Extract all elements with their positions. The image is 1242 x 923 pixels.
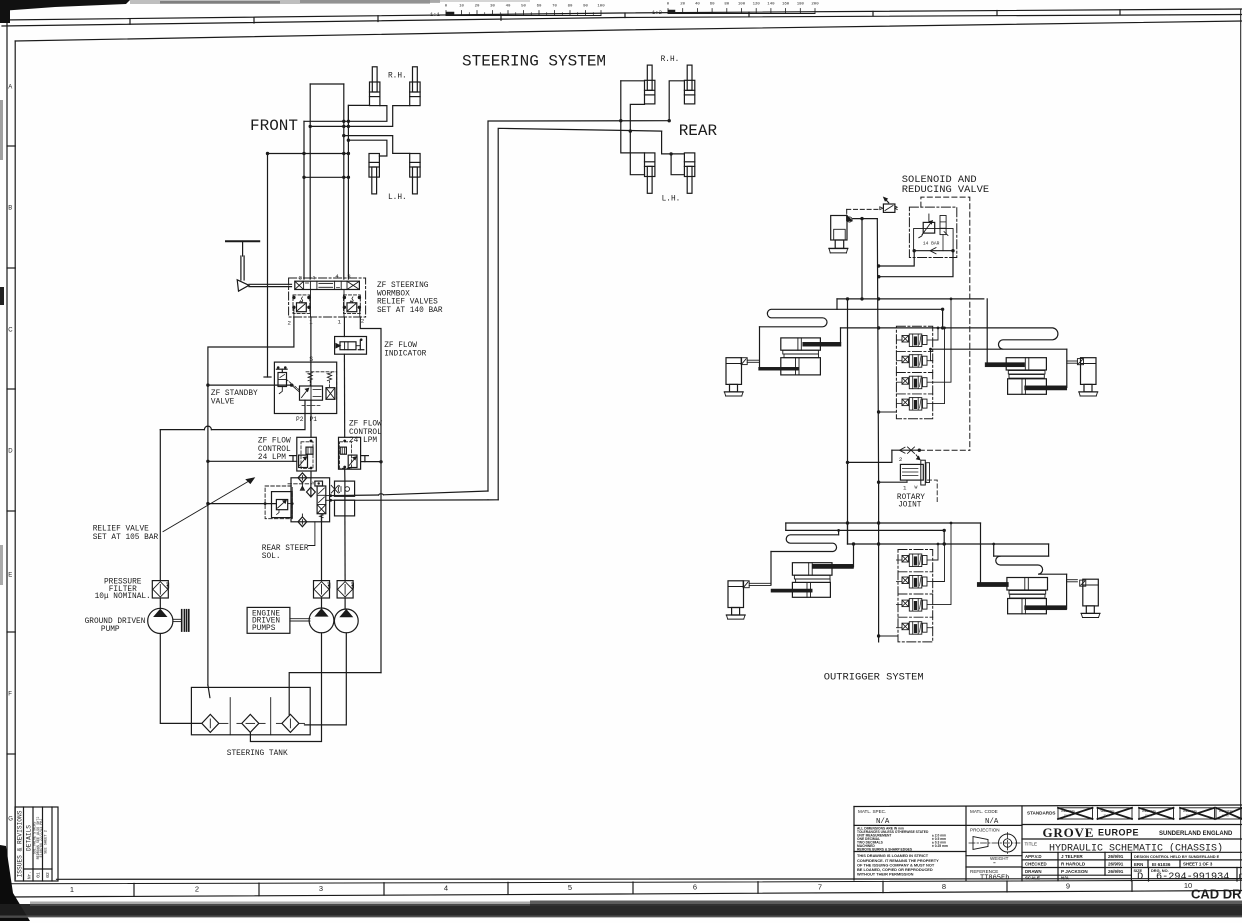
- svg-text:E: E: [8, 573, 12, 579]
- svg-text:2: 2: [361, 318, 365, 325]
- svg-text:01: 01: [36, 872, 42, 878]
- svg-text:24 LPM: 24 LPM: [349, 437, 377, 445]
- svg-text:10: 10: [459, 5, 464, 9]
- svg-text:EUROPE: EUROPE: [1098, 828, 1139, 838]
- svg-text:3: 3: [347, 273, 351, 280]
- svg-text:REMOVE BURRS & SHARP EDGES: REMOVE BURRS & SHARP EDGES: [857, 848, 913, 852]
- svg-text:FRONT: FRONT: [250, 117, 298, 135]
- svg-text:4: 4: [335, 273, 339, 280]
- svg-text:SYM: SYM: [1064, 814, 1071, 818]
- svg-text:L.H.: L.H.: [388, 194, 407, 202]
- svg-text:ISSUES & REVISIONS: ISSUES & REVISIONS: [16, 810, 23, 877]
- svg-text:SET AT 140 BAR: SET AT 140 BAR: [377, 307, 443, 315]
- svg-text:8: 8: [942, 882, 946, 891]
- svg-text:26/9/91: 26/9/91: [1108, 869, 1124, 874]
- svg-text:APP.V.D: APP.V.D: [1025, 854, 1042, 859]
- svg-text:P1: P1: [310, 416, 318, 423]
- svg-text:REFERENCE: REFERENCE: [970, 869, 998, 874]
- svg-text:200: 200: [811, 3, 819, 7]
- svg-text:7: 7: [818, 882, 822, 891]
- svg-text:SHEET 1 OF 3: SHEET 1 OF 3: [1183, 861, 1213, 866]
- svg-text:SYM: SYM: [1186, 814, 1193, 818]
- svg-text:C: C: [1239, 873, 1242, 882]
- svg-text:3: 3: [299, 274, 303, 281]
- svg-text:REAR: REAR: [679, 122, 718, 140]
- svg-text:D: D: [8, 449, 13, 455]
- svg-text:R.H.: R.H.: [388, 73, 407, 81]
- svg-text:40: 40: [506, 5, 511, 9]
- svg-text:CONTROL: CONTROL: [349, 429, 382, 437]
- svg-text:20: 20: [475, 5, 480, 9]
- svg-text:RELIEF VALVE: RELIEF VALVE: [93, 526, 149, 534]
- svg-text:1: 1: [903, 485, 907, 492]
- svg-text:4: 4: [312, 274, 316, 281]
- svg-text:TT865Eb: TT865Eb: [980, 874, 1009, 882]
- svg-text:50: 50: [521, 5, 526, 9]
- svg-text:L.H.: L.H.: [662, 195, 681, 203]
- svg-text:DESIGN CONTROL HELD BY SUNDERL: DESIGN CONTROL HELD BY SUNDERLAND E: [1134, 854, 1220, 859]
- svg-text:JOINT: JOINT: [898, 502, 922, 510]
- svg-text:1:2: 1:2: [652, 9, 662, 16]
- svg-text:N/A: N/A: [1061, 875, 1070, 880]
- svg-text:140: 140: [767, 3, 775, 7]
- svg-text:10μ NOMINAL.: 10μ NOMINAL.: [95, 593, 151, 601]
- svg-text:EI 61036: EI 61036: [1152, 862, 1171, 867]
- svg-text:6: 6: [693, 883, 697, 892]
- svg-text:02: 02: [45, 872, 51, 878]
- svg-text:R.H.: R.H.: [661, 56, 680, 64]
- svg-text:60: 60: [710, 3, 715, 7]
- svg-text:3: 3: [319, 884, 323, 893]
- svg-text:Y: Y: [312, 480, 315, 486]
- svg-text:1: 1: [338, 319, 342, 326]
- svg-text:MATL. SPEC.: MATL. SPEC.: [858, 809, 886, 814]
- svg-text:2: 2: [899, 456, 903, 463]
- svg-text:9: 9: [1066, 881, 1070, 890]
- svg-text:6-294-991934: 6-294-991934: [1156, 872, 1229, 883]
- svg-text:VALVE: VALVE: [211, 398, 235, 406]
- svg-text:SYM: SYM: [1222, 814, 1229, 818]
- svg-text:24 LPM: 24 LPM: [258, 454, 286, 462]
- svg-text:60: 60: [537, 5, 542, 9]
- svg-text:N/A: N/A: [876, 818, 890, 826]
- svg-text:160: 160: [782, 3, 790, 7]
- svg-text:WELDING: WELDING: [1142, 809, 1157, 813]
- svg-text:C: C: [8, 328, 13, 334]
- svg-text:B: B: [8, 206, 12, 212]
- svg-text:-: -: [992, 859, 997, 868]
- svg-text:SYM: SYM: [1145, 814, 1152, 818]
- svg-text:PUMP: PUMP: [101, 626, 120, 634]
- svg-text:ZF STANDBY: ZF STANDBY: [211, 390, 258, 398]
- svg-text:MATL. CODE: MATL. CODE: [970, 809, 998, 814]
- svg-text:STEERING TANK: STEERING TANK: [227, 750, 288, 758]
- svg-text:80: 80: [568, 5, 573, 9]
- svg-text:SEE SHEET 2: SEE SHEET 2: [45, 830, 49, 854]
- svg-text:30: 30: [490, 5, 495, 9]
- svg-text:2: 2: [288, 320, 292, 327]
- svg-text:26/9/91: 26/9/91: [1108, 854, 1124, 859]
- svg-text:P JACKSON: P JACKSON: [1061, 869, 1088, 874]
- svg-text:WITHOUT THEIR PERMISSION: WITHOUT THEIR PERMISSION: [857, 871, 914, 876]
- svg-text:J TELFER: J TELFER: [1061, 854, 1083, 859]
- svg-text:CHECKED: CHECKED: [1025, 862, 1047, 867]
- svg-text:CONTROL: CONTROL: [258, 446, 291, 454]
- svg-text:WORMBOX: WORMBOX: [377, 290, 410, 298]
- svg-text:CAD DRG: CAD DRG: [1191, 887, 1242, 902]
- svg-text:4: 4: [444, 884, 448, 893]
- svg-text:OUTRIGGER SYSTEM: OUTRIGGER SYSTEM: [824, 672, 924, 684]
- svg-text:ZF STEERING: ZF STEERING: [377, 282, 429, 290]
- svg-text:GROUND DRIVEN: GROUND DRIVEN: [85, 618, 146, 626]
- svg-text:SET AT 105 BAR: SET AT 105 BAR: [93, 534, 159, 542]
- svg-text:WELDING: WELDING: [1061, 809, 1076, 813]
- svg-text:WELDING: WELDING: [1101, 809, 1116, 813]
- svg-text:ZF FLOW: ZF FLOW: [258, 438, 291, 446]
- svg-text:WELDING: WELDING: [1183, 809, 1198, 813]
- svg-text:SYM: SYM: [1104, 814, 1111, 818]
- svg-text:Nr.: Nr.: [26, 871, 32, 879]
- svg-text:E160786 22/2/93 PHJ: E160786 22/2/93 PHJ: [39, 819, 44, 858]
- svg-text:1: 1: [70, 885, 74, 894]
- svg-text:70: 70: [552, 5, 557, 9]
- svg-text:PUMPS: PUMPS: [252, 625, 276, 633]
- svg-text:14 BAR: 14 BAR: [923, 240, 940, 246]
- svg-text:INDICATOR: INDICATOR: [384, 350, 426, 358]
- svg-text:P2: P2: [296, 416, 304, 423]
- svg-text:G: G: [8, 817, 13, 823]
- svg-text:180: 180: [797, 3, 805, 7]
- svg-text:± 0.25 mm: ± 0.25 mm: [932, 844, 948, 848]
- svg-text:N/A: N/A: [985, 818, 999, 826]
- svg-text:5: 5: [568, 883, 572, 892]
- svg-text:W: W: [915, 485, 918, 491]
- svg-text:REAR STEER: REAR STEER: [262, 545, 309, 553]
- svg-text:STEERING SYSTEM: STEERING SYSTEM: [462, 53, 606, 71]
- svg-text:RELIEF VALVES: RELIEF VALVES: [377, 299, 438, 307]
- svg-text:90: 90: [583, 5, 588, 9]
- svg-text:120: 120: [753, 3, 761, 7]
- svg-text:SUNDERLAND ENGLAND: SUNDERLAND ENGLAND: [1159, 831, 1233, 837]
- svg-text:SOL.: SOL.: [262, 553, 281, 561]
- svg-text:20: 20: [680, 3, 685, 7]
- svg-text:80: 80: [724, 3, 729, 7]
- svg-text:2: 2: [195, 884, 199, 893]
- svg-text:WELDING: WELDING: [1219, 809, 1234, 813]
- svg-text:A: A: [8, 85, 12, 91]
- svg-text:TITLE: TITLE: [1025, 842, 1038, 847]
- svg-text:DRAWN: DRAWN: [1025, 869, 1042, 874]
- svg-text:REDUCING VALVE: REDUCING VALVE: [902, 184, 989, 196]
- svg-text:ZF FLOW: ZF FLOW: [349, 421, 382, 429]
- svg-text:R HAROLD: R HAROLD: [1061, 862, 1086, 867]
- svg-text:GROVE: GROVE: [1043, 825, 1095, 840]
- svg-text:40: 40: [695, 3, 700, 7]
- svg-text:100: 100: [738, 3, 746, 7]
- svg-text:STANDARDS: STANDARDS: [1027, 811, 1056, 816]
- svg-text:D: D: [1137, 871, 1143, 883]
- svg-text:F: F: [8, 692, 12, 698]
- svg-text:DETAILS: DETAILS: [25, 825, 32, 851]
- svg-text:1:1: 1:1: [430, 11, 441, 18]
- svg-text:SCALE: SCALE: [1025, 875, 1040, 880]
- svg-text:ERN: ERN: [1134, 862, 1143, 867]
- svg-text:26/9/91: 26/9/91: [1108, 862, 1124, 867]
- svg-text:PROJECTION: PROJECTION: [970, 828, 1000, 833]
- svg-text:100: 100: [597, 5, 605, 9]
- svg-text:ZF FLOW: ZF FLOW: [384, 342, 417, 350]
